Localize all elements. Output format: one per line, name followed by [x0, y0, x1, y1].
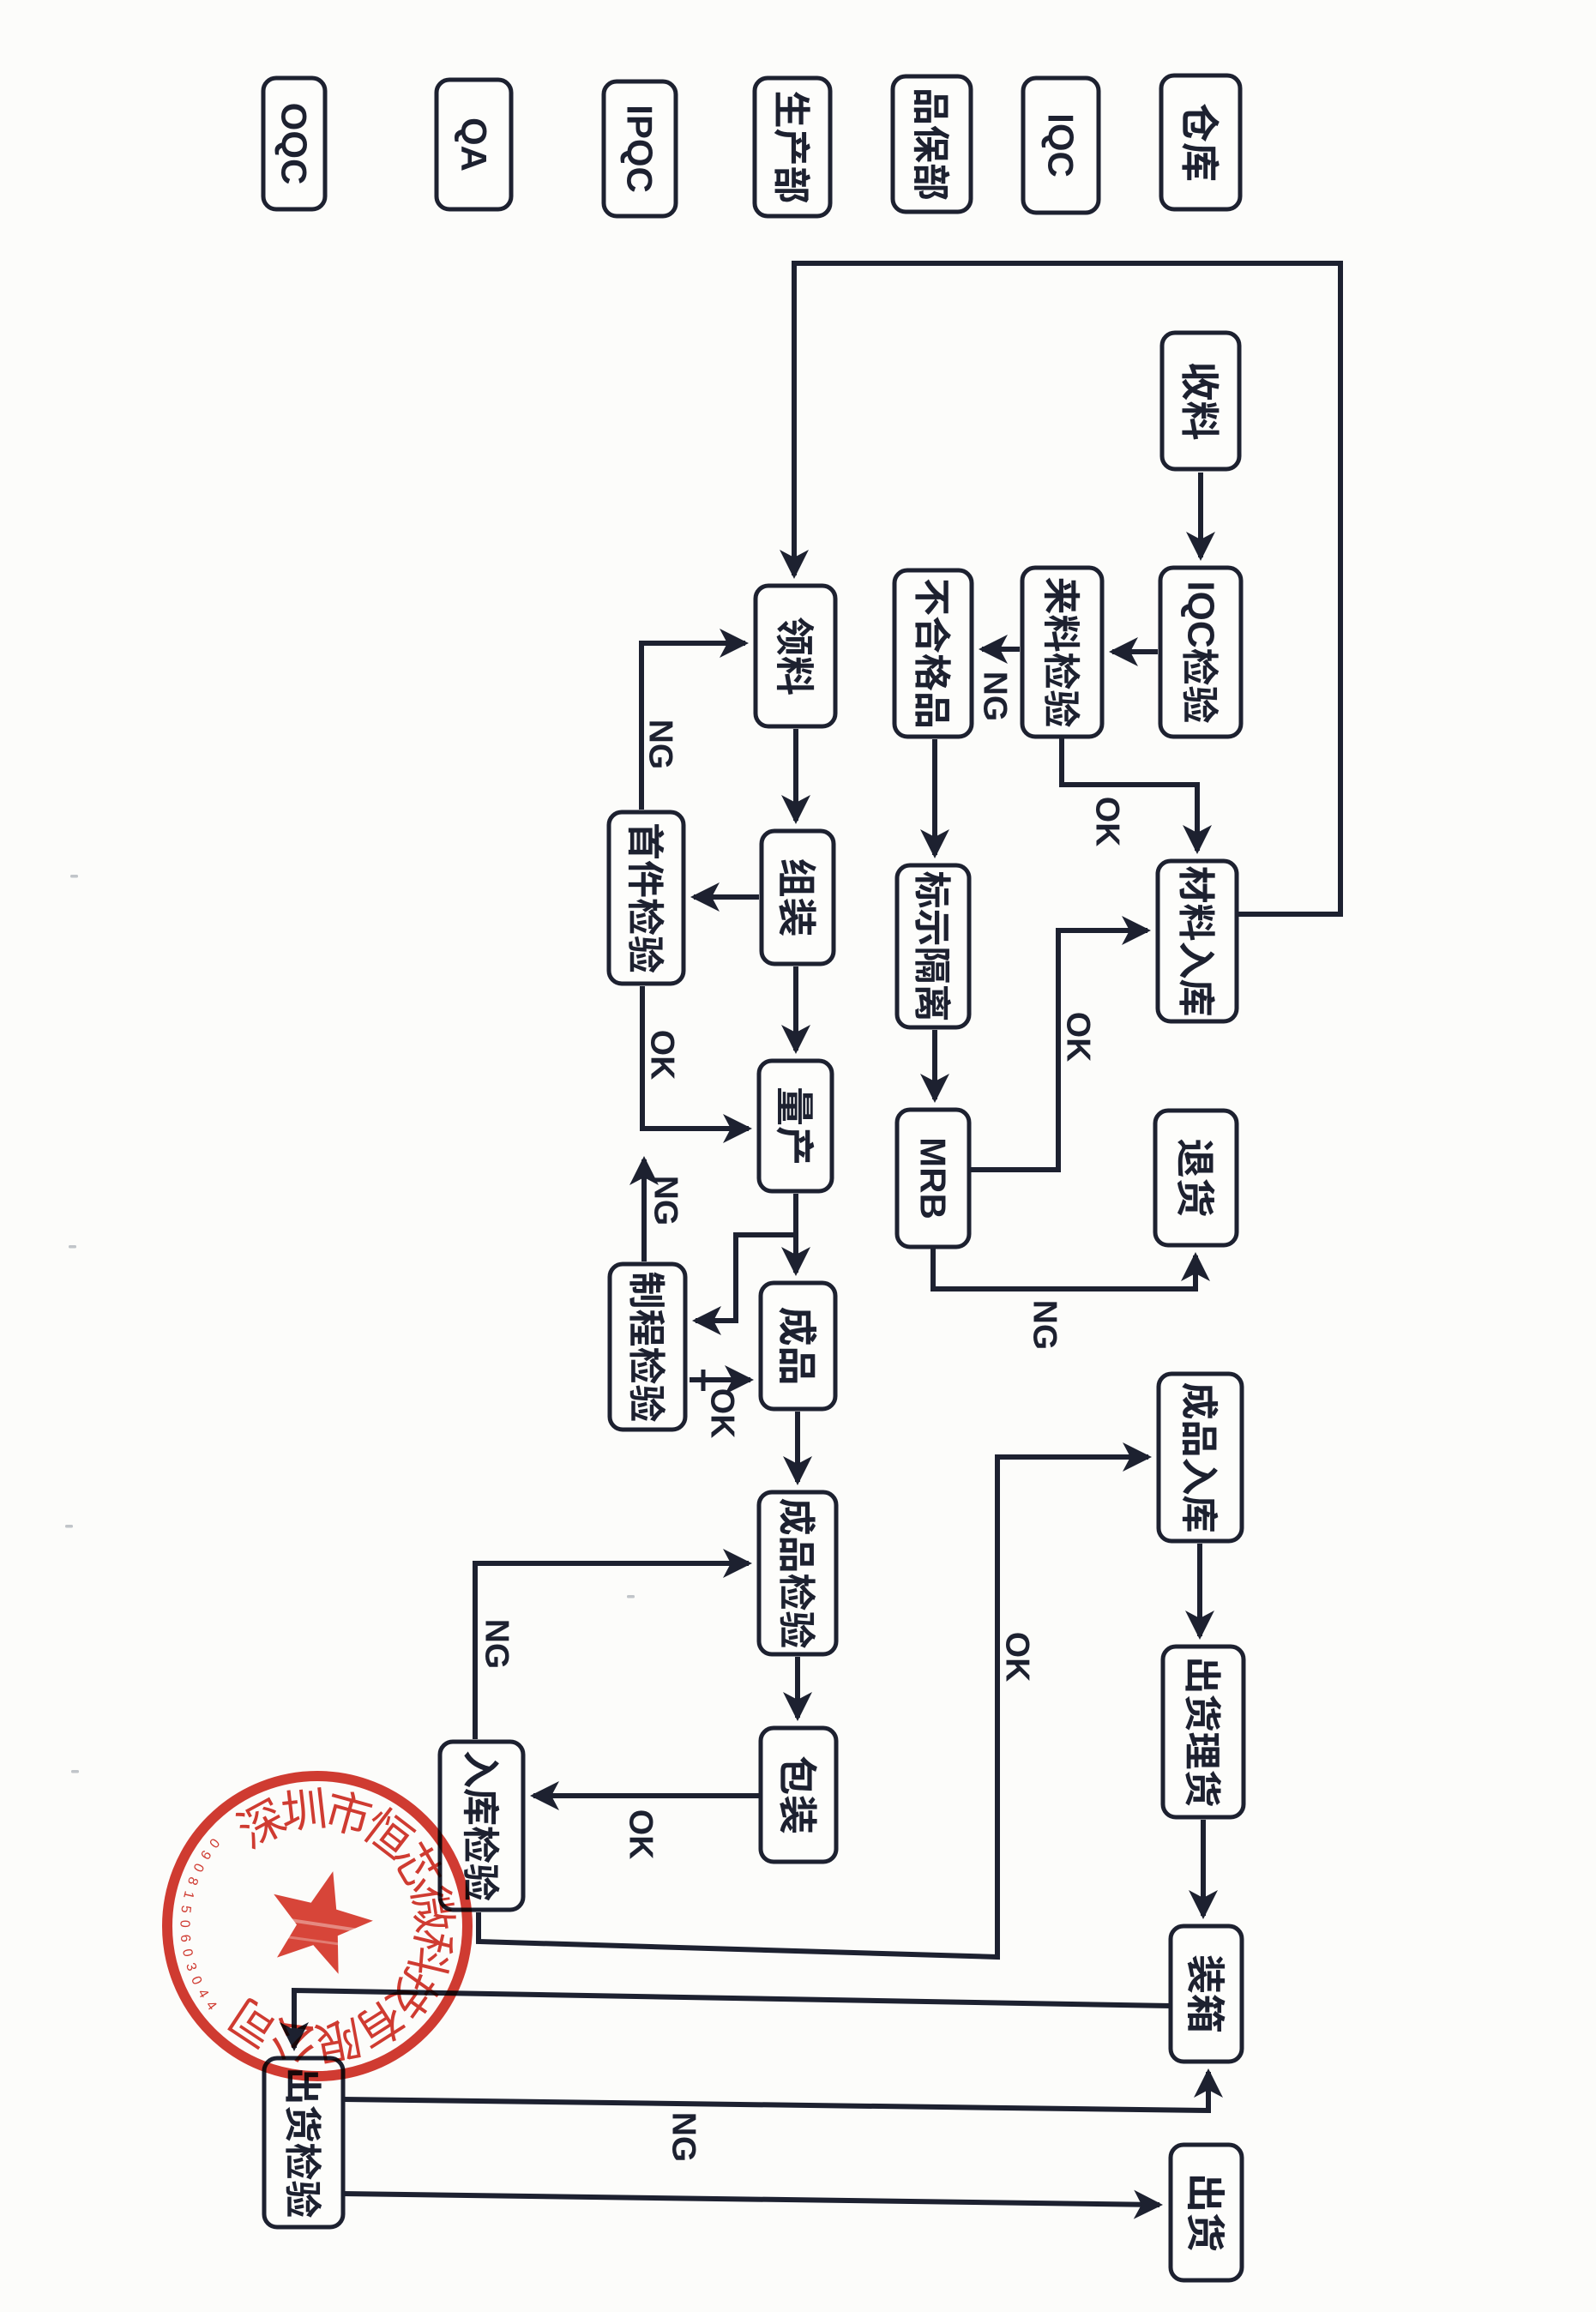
svg-text:NG: NG — [642, 719, 679, 770]
svg-text:OK: OK — [644, 1030, 681, 1081]
svg-text:MRB: MRB — [913, 1137, 954, 1219]
svg-text:QA: QA — [454, 117, 494, 172]
svg-text:OQC: OQC — [274, 103, 315, 185]
svg-text:OK: OK — [1089, 797, 1126, 847]
svg-text:OK: OK — [623, 1809, 659, 1860]
svg-text:NG: NG — [647, 1176, 684, 1226]
svg-text:NG: NG — [479, 1619, 515, 1670]
svg-text:NG: NG — [1027, 1300, 1063, 1351]
svg-text:0: 0 — [177, 1920, 191, 1928]
svg-text:OK: OK — [1060, 1012, 1097, 1063]
svg-text:IQC: IQC — [1180, 581, 1222, 647]
svg-text:OK: OK — [999, 1632, 1036, 1683]
svg-text:NG: NG — [977, 671, 1014, 722]
svg-text:IPQC: IPQC — [620, 105, 660, 193]
svg-text:6: 6 — [178, 1934, 193, 1943]
svg-text:OK: OK — [704, 1388, 741, 1439]
svg-text:NG: NG — [666, 2112, 702, 2163]
svg-text:IQC: IQC — [1041, 113, 1081, 178]
